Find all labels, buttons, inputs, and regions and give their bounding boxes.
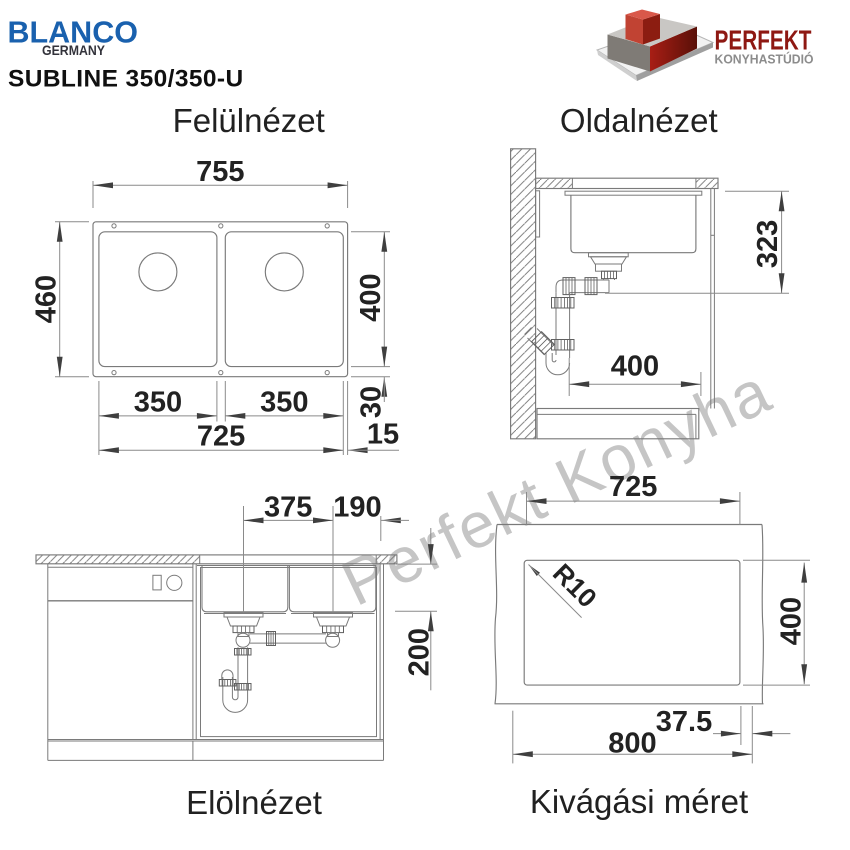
svg-text:190: 190: [333, 492, 381, 524]
svg-text:15: 15: [367, 419, 399, 451]
svg-text:323: 323: [752, 220, 784, 268]
svg-text:350: 350: [134, 387, 182, 419]
svg-text:400: 400: [355, 273, 387, 321]
svg-text:725: 725: [609, 471, 657, 503]
svg-text:SUBLINE 350/350-U: SUBLINE 350/350-U: [8, 66, 244, 93]
svg-text:KONYHASTÚDIÓ: KONYHASTÚDIÓ: [715, 52, 814, 67]
svg-text:375: 375: [264, 492, 312, 524]
svg-text:400: 400: [611, 351, 659, 383]
svg-text:Elölnézet: Elölnézet: [186, 784, 322, 821]
svg-text:Kivágási méret: Kivágási méret: [530, 783, 748, 820]
svg-text:200: 200: [404, 628, 436, 676]
svg-text:30: 30: [356, 386, 388, 418]
svg-text:400: 400: [776, 597, 808, 645]
svg-text:800: 800: [608, 728, 656, 760]
svg-text:37.5: 37.5: [656, 706, 712, 738]
svg-text:755: 755: [196, 156, 244, 188]
svg-text:Felülnézet: Felülnézet: [173, 102, 325, 139]
svg-text:Oldalnézet: Oldalnézet: [560, 102, 718, 139]
svg-text:GERMANY: GERMANY: [42, 42, 106, 58]
svg-text:460: 460: [31, 275, 63, 323]
svg-text:350: 350: [260, 387, 308, 419]
svg-text:725: 725: [197, 421, 245, 453]
